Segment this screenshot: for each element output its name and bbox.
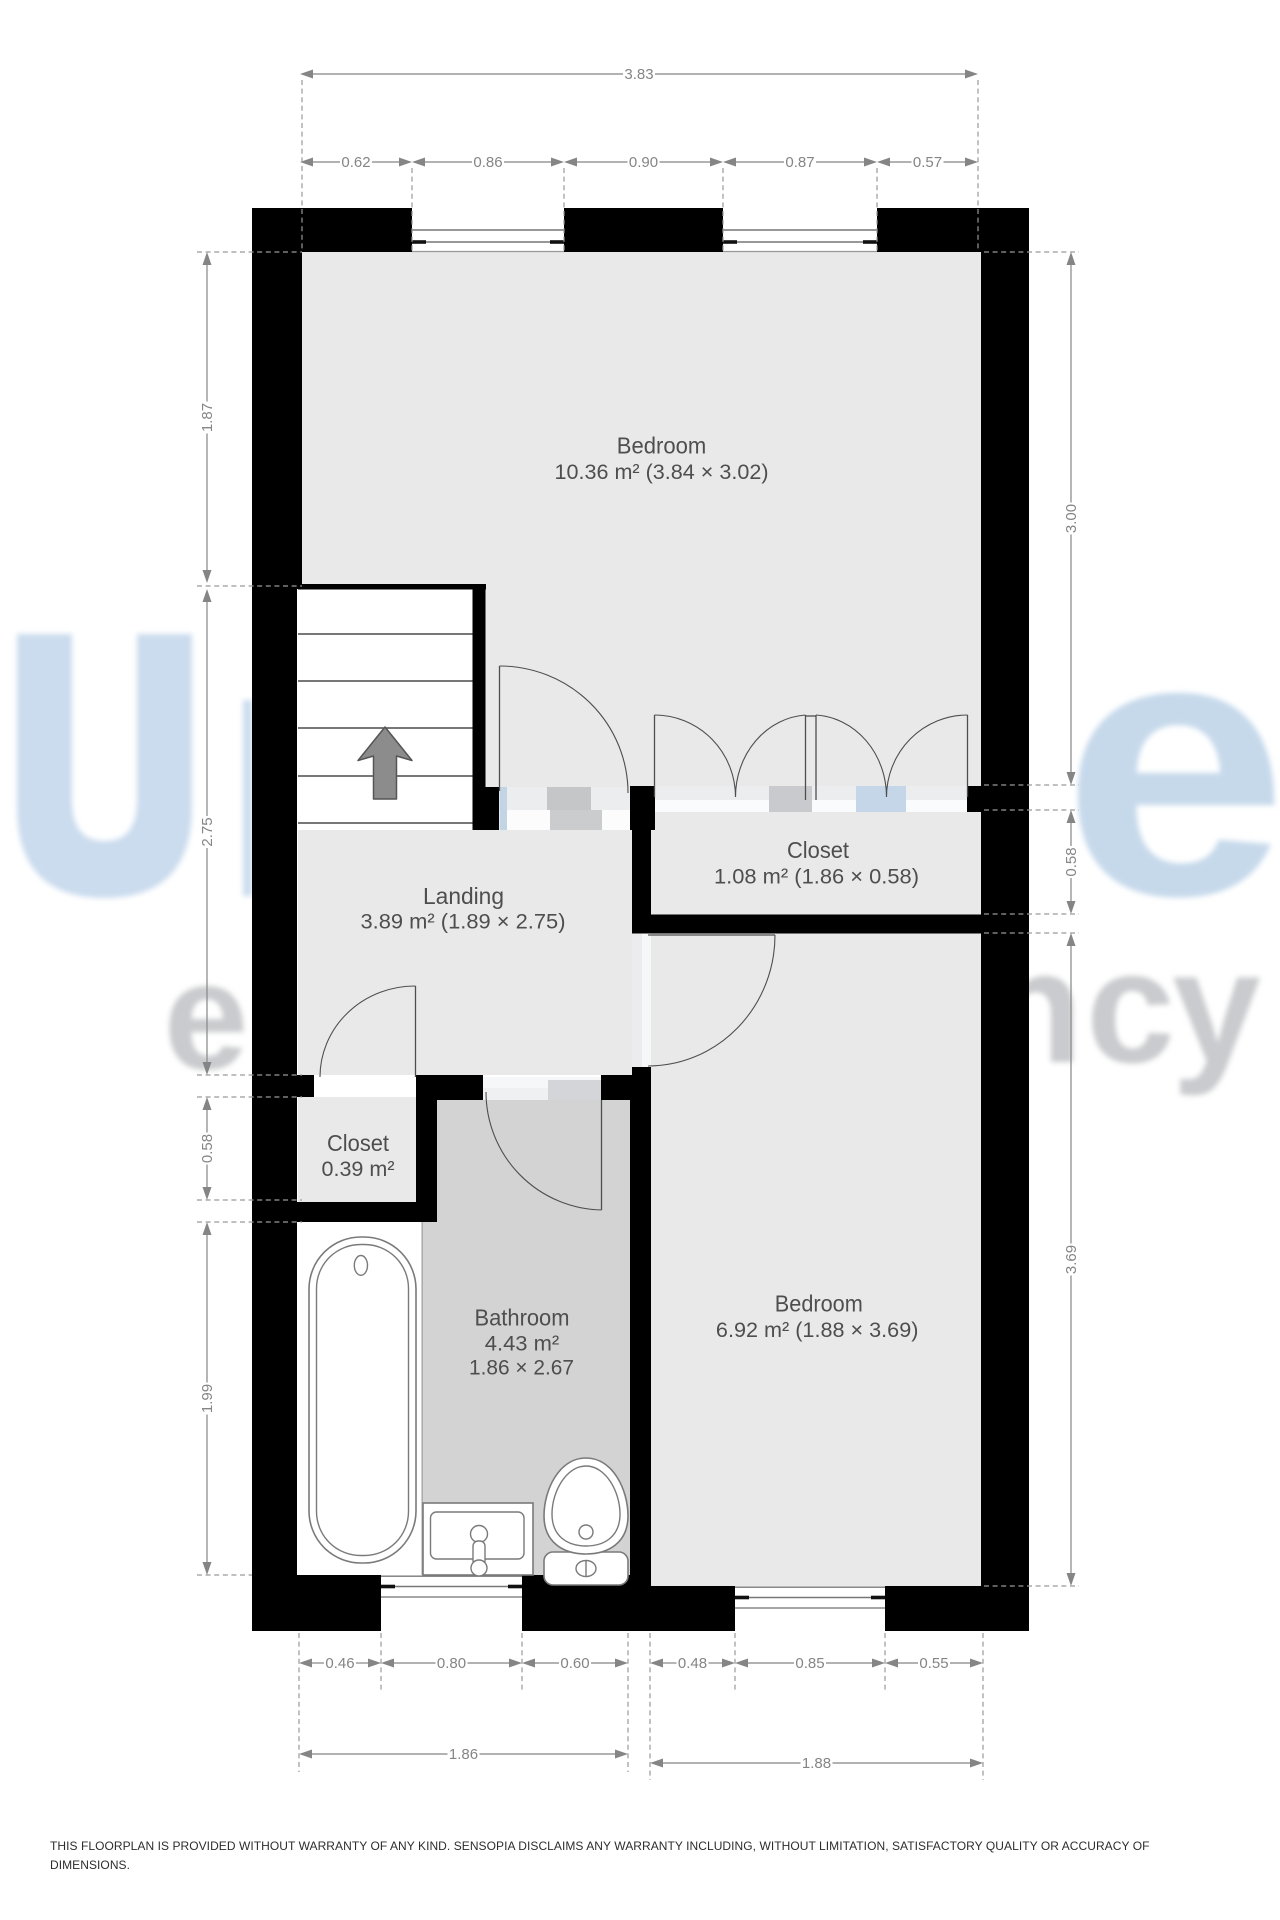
svg-text:0.87: 0.87 (785, 154, 814, 171)
svg-text:y: y (1172, 917, 1261, 1096)
svg-text:0.57: 0.57 (913, 154, 942, 171)
svg-text:4.43 m²: 4.43 m² (485, 1333, 560, 1356)
svg-text:3.69: 3.69 (1063, 1245, 1080, 1274)
svg-text:1.86: 1.86 (449, 1746, 478, 1763)
svg-text:0.39 m²: 0.39 m² (322, 1158, 395, 1181)
svg-text:3.89 m² (1.89 × 2.75): 3.89 m² (1.89 × 2.75) (361, 911, 566, 934)
svg-text:6.92 m² (1.88 × 3.69): 6.92 m² (1.88 × 3.69) (716, 1319, 919, 1342)
svg-text:2.75: 2.75 (199, 817, 216, 846)
svg-text:Bedroom: Bedroom (775, 1291, 863, 1317)
svg-text:0.62: 0.62 (341, 154, 370, 171)
svg-text:0.86: 0.86 (473, 154, 502, 171)
svg-text:Closet: Closet (787, 837, 850, 863)
svg-text:0.46: 0.46 (325, 1655, 354, 1672)
svg-text:1.88: 1.88 (802, 1755, 831, 1772)
svg-text:Landing: Landing (423, 883, 504, 909)
svg-text:e: e (164, 931, 249, 1102)
svg-text:1.08 m² (1.86 × 0.58): 1.08 m² (1.86 × 0.58) (714, 866, 919, 889)
svg-text:3.83: 3.83 (624, 66, 653, 83)
svg-text:1.86 × 2.67: 1.86 × 2.67 (469, 1357, 574, 1380)
svg-text:0.55: 0.55 (919, 1655, 948, 1672)
svg-text:0.60: 0.60 (560, 1655, 589, 1672)
svg-text:c: c (1086, 917, 1175, 1096)
svg-text:0.85: 0.85 (795, 1655, 824, 1672)
svg-text:Bedroom: Bedroom (617, 433, 707, 459)
svg-text:1.87: 1.87 (199, 403, 216, 432)
svg-text:0.58: 0.58 (199, 1134, 216, 1163)
svg-text:10.36 m² (3.84 × 3.02): 10.36 m² (3.84 × 3.02) (555, 461, 769, 484)
svg-text:0.58: 0.58 (1063, 847, 1080, 876)
svg-text:Bathroom: Bathroom (475, 1305, 570, 1331)
svg-text:1.99: 1.99 (199, 1384, 216, 1413)
svg-text:Closet: Closet (327, 1130, 390, 1156)
svg-text:3.00: 3.00 (1063, 504, 1080, 533)
svg-text:e: e (1062, 555, 1280, 973)
svg-text:0.80: 0.80 (437, 1655, 466, 1672)
svg-text:0.90: 0.90 (629, 154, 658, 171)
svg-text:0.48: 0.48 (678, 1655, 707, 1672)
